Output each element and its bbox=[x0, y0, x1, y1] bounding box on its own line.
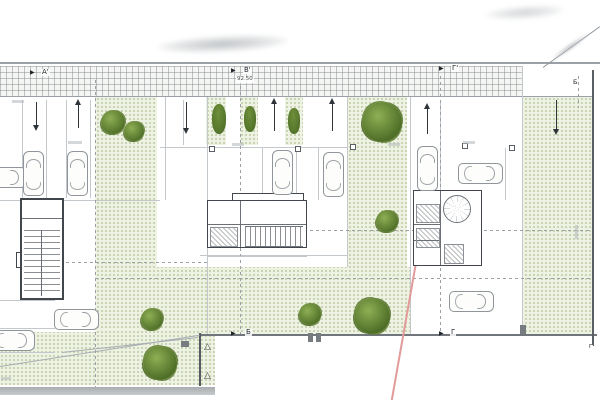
tree-symbol bbox=[376, 210, 398, 232]
direction-arrow-icon bbox=[33, 100, 40, 130]
car-symbol bbox=[272, 150, 293, 195]
arrow-shaft bbox=[332, 101, 333, 131]
arrow-head bbox=[271, 98, 277, 104]
arrow-head bbox=[329, 98, 335, 104]
car-symbol bbox=[67, 151, 88, 196]
tree-symbol bbox=[101, 110, 125, 134]
tree-symbol bbox=[299, 303, 321, 325]
direction-arrow-icon bbox=[75, 100, 82, 130]
direction-arrow-icon bbox=[271, 99, 278, 133]
car-symbol bbox=[417, 146, 438, 191]
car-symbol bbox=[23, 151, 44, 196]
direction-arrow-icon bbox=[329, 99, 336, 133]
tree-symbol bbox=[362, 102, 402, 142]
direction-arrow-icon bbox=[424, 104, 431, 136]
arrow-head bbox=[424, 103, 430, 109]
arrow-head bbox=[75, 99, 81, 105]
tree-symbol bbox=[244, 106, 256, 131]
arrow-shaft bbox=[427, 106, 428, 134]
tree-symbol bbox=[143, 346, 177, 380]
tree-symbol bbox=[124, 121, 144, 141]
symbols-layer bbox=[0, 0, 600, 400]
car-symbol bbox=[449, 291, 494, 312]
car-symbol bbox=[458, 163, 503, 184]
arrow-shaft bbox=[274, 101, 275, 131]
car-symbol bbox=[323, 152, 344, 197]
car-symbol bbox=[54, 309, 99, 330]
direction-arrow-icon bbox=[183, 100, 190, 133]
tree-symbol bbox=[354, 298, 390, 334]
arrow-head bbox=[553, 129, 559, 135]
arrow-head bbox=[33, 125, 39, 131]
site-plan-sheet: А' В' 92.50 Г' Б Г Б Г bbox=[0, 0, 600, 400]
arrow-head bbox=[183, 128, 189, 134]
arrow-shaft bbox=[556, 100, 557, 132]
arrow-shaft bbox=[186, 102, 187, 131]
tree-symbol bbox=[212, 104, 226, 133]
tree-symbol bbox=[141, 308, 163, 330]
car-symbol bbox=[0, 330, 35, 351]
tree-symbol bbox=[288, 108, 300, 133]
direction-arrow-icon bbox=[553, 98, 560, 134]
arrow-shaft bbox=[78, 102, 79, 128]
